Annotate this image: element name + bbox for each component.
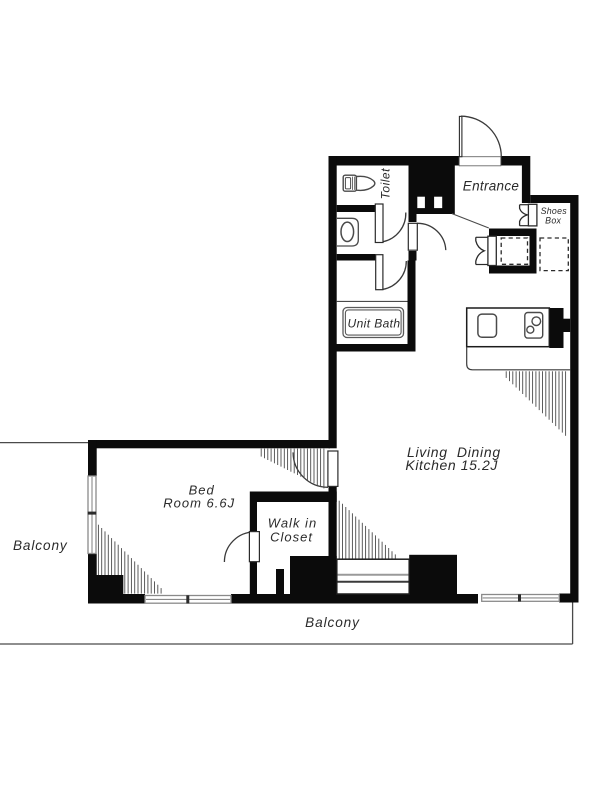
svg-text:Room 6.6J: Room 6.6J xyxy=(163,496,235,511)
svg-text:Box: Box xyxy=(545,216,561,226)
svg-text:Walk in: Walk in xyxy=(268,516,317,531)
svg-text:Balcony: Balcony xyxy=(13,538,68,553)
svg-text:Entrance: Entrance xyxy=(463,179,519,194)
svg-text:Toilet: Toilet xyxy=(379,168,393,199)
svg-text:Balcony: Balcony xyxy=(305,615,360,630)
svg-text:Unit Bath: Unit Bath xyxy=(348,316,401,330)
svg-text:Closet: Closet xyxy=(270,530,313,545)
svg-text:Kitchen 15.2J: Kitchen 15.2J xyxy=(405,457,498,473)
